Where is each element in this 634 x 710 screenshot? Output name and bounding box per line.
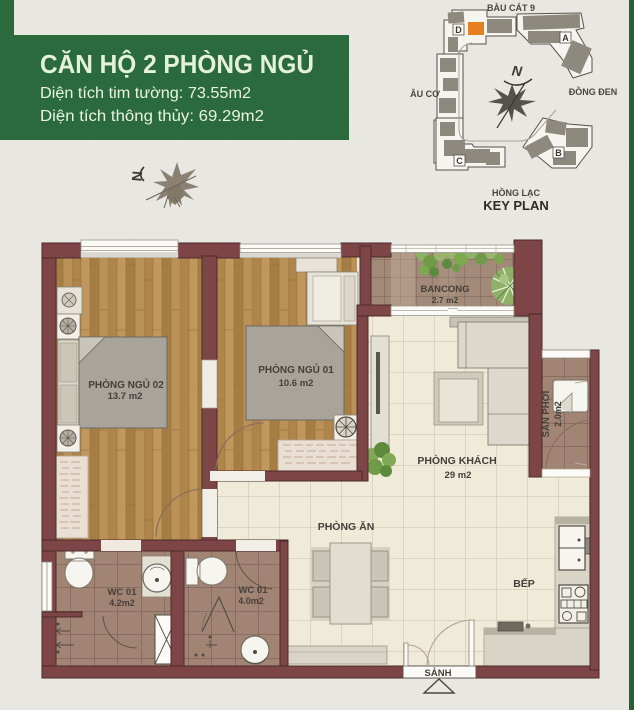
svg-text:D: D bbox=[455, 25, 462, 35]
svg-text:10.6 m2: 10.6 m2 bbox=[279, 378, 314, 389]
svg-text:SÂN PHƠI: SÂN PHƠI bbox=[540, 391, 552, 438]
svg-text:B: B bbox=[555, 148, 562, 158]
svg-text:PHÒNG ĂN: PHÒNG ĂN bbox=[318, 520, 375, 533]
svg-text:2.7 m2: 2.7 m2 bbox=[432, 295, 459, 305]
svg-text:KEY PLAN: KEY PLAN bbox=[483, 198, 549, 213]
svg-text:HỒNG LẠC: HỒNG LẠC bbox=[492, 187, 540, 198]
svg-text:13.7 m2: 13.7 m2 bbox=[108, 391, 143, 402]
svg-text:CĂN HỘ 2 PHÒNG NGỦ: CĂN HỘ 2 PHÒNG NGỦ bbox=[40, 48, 314, 79]
svg-text:WC 01: WC 01 bbox=[107, 587, 137, 598]
svg-text:Diện tích thông thủy: 69.29m2: Diện tích thông thủy: 69.29m2 bbox=[40, 108, 264, 125]
svg-text:29 m2: 29 m2 bbox=[445, 470, 472, 481]
svg-text:A: A bbox=[562, 33, 569, 43]
svg-text:C: C bbox=[456, 156, 463, 166]
svg-text:BANCONG: BANCONG bbox=[420, 284, 469, 295]
svg-text:PHÒNG KHÁCH: PHÒNG KHÁCH bbox=[417, 454, 496, 467]
svg-text:WC 01: WC 01 bbox=[238, 585, 268, 596]
svg-text:PHÒNG NGỦ 01: PHÒNG NGỦ 01 bbox=[258, 363, 334, 376]
svg-text:4.2m2: 4.2m2 bbox=[109, 598, 135, 608]
svg-text:2.0m2: 2.0m2 bbox=[553, 401, 563, 427]
svg-text:ÂU CƠ: ÂU CƠ bbox=[410, 88, 440, 99]
svg-text:ĐỒNG ĐEN: ĐỒNG ĐEN bbox=[569, 86, 618, 97]
svg-text:BẾP: BẾP bbox=[513, 577, 535, 590]
svg-text:Diện tích tim tường: 73.55m2: Diện tích tim tường: 73.55m2 bbox=[40, 85, 251, 102]
svg-text:SẢNH: SẢNH bbox=[425, 667, 452, 679]
svg-text:BÀU CÁT 9: BÀU CÁT 9 bbox=[487, 3, 535, 13]
svg-text:PHÒNG NGỦ 02: PHÒNG NGỦ 02 bbox=[88, 378, 164, 391]
svg-text:4.0m2: 4.0m2 bbox=[238, 596, 264, 606]
